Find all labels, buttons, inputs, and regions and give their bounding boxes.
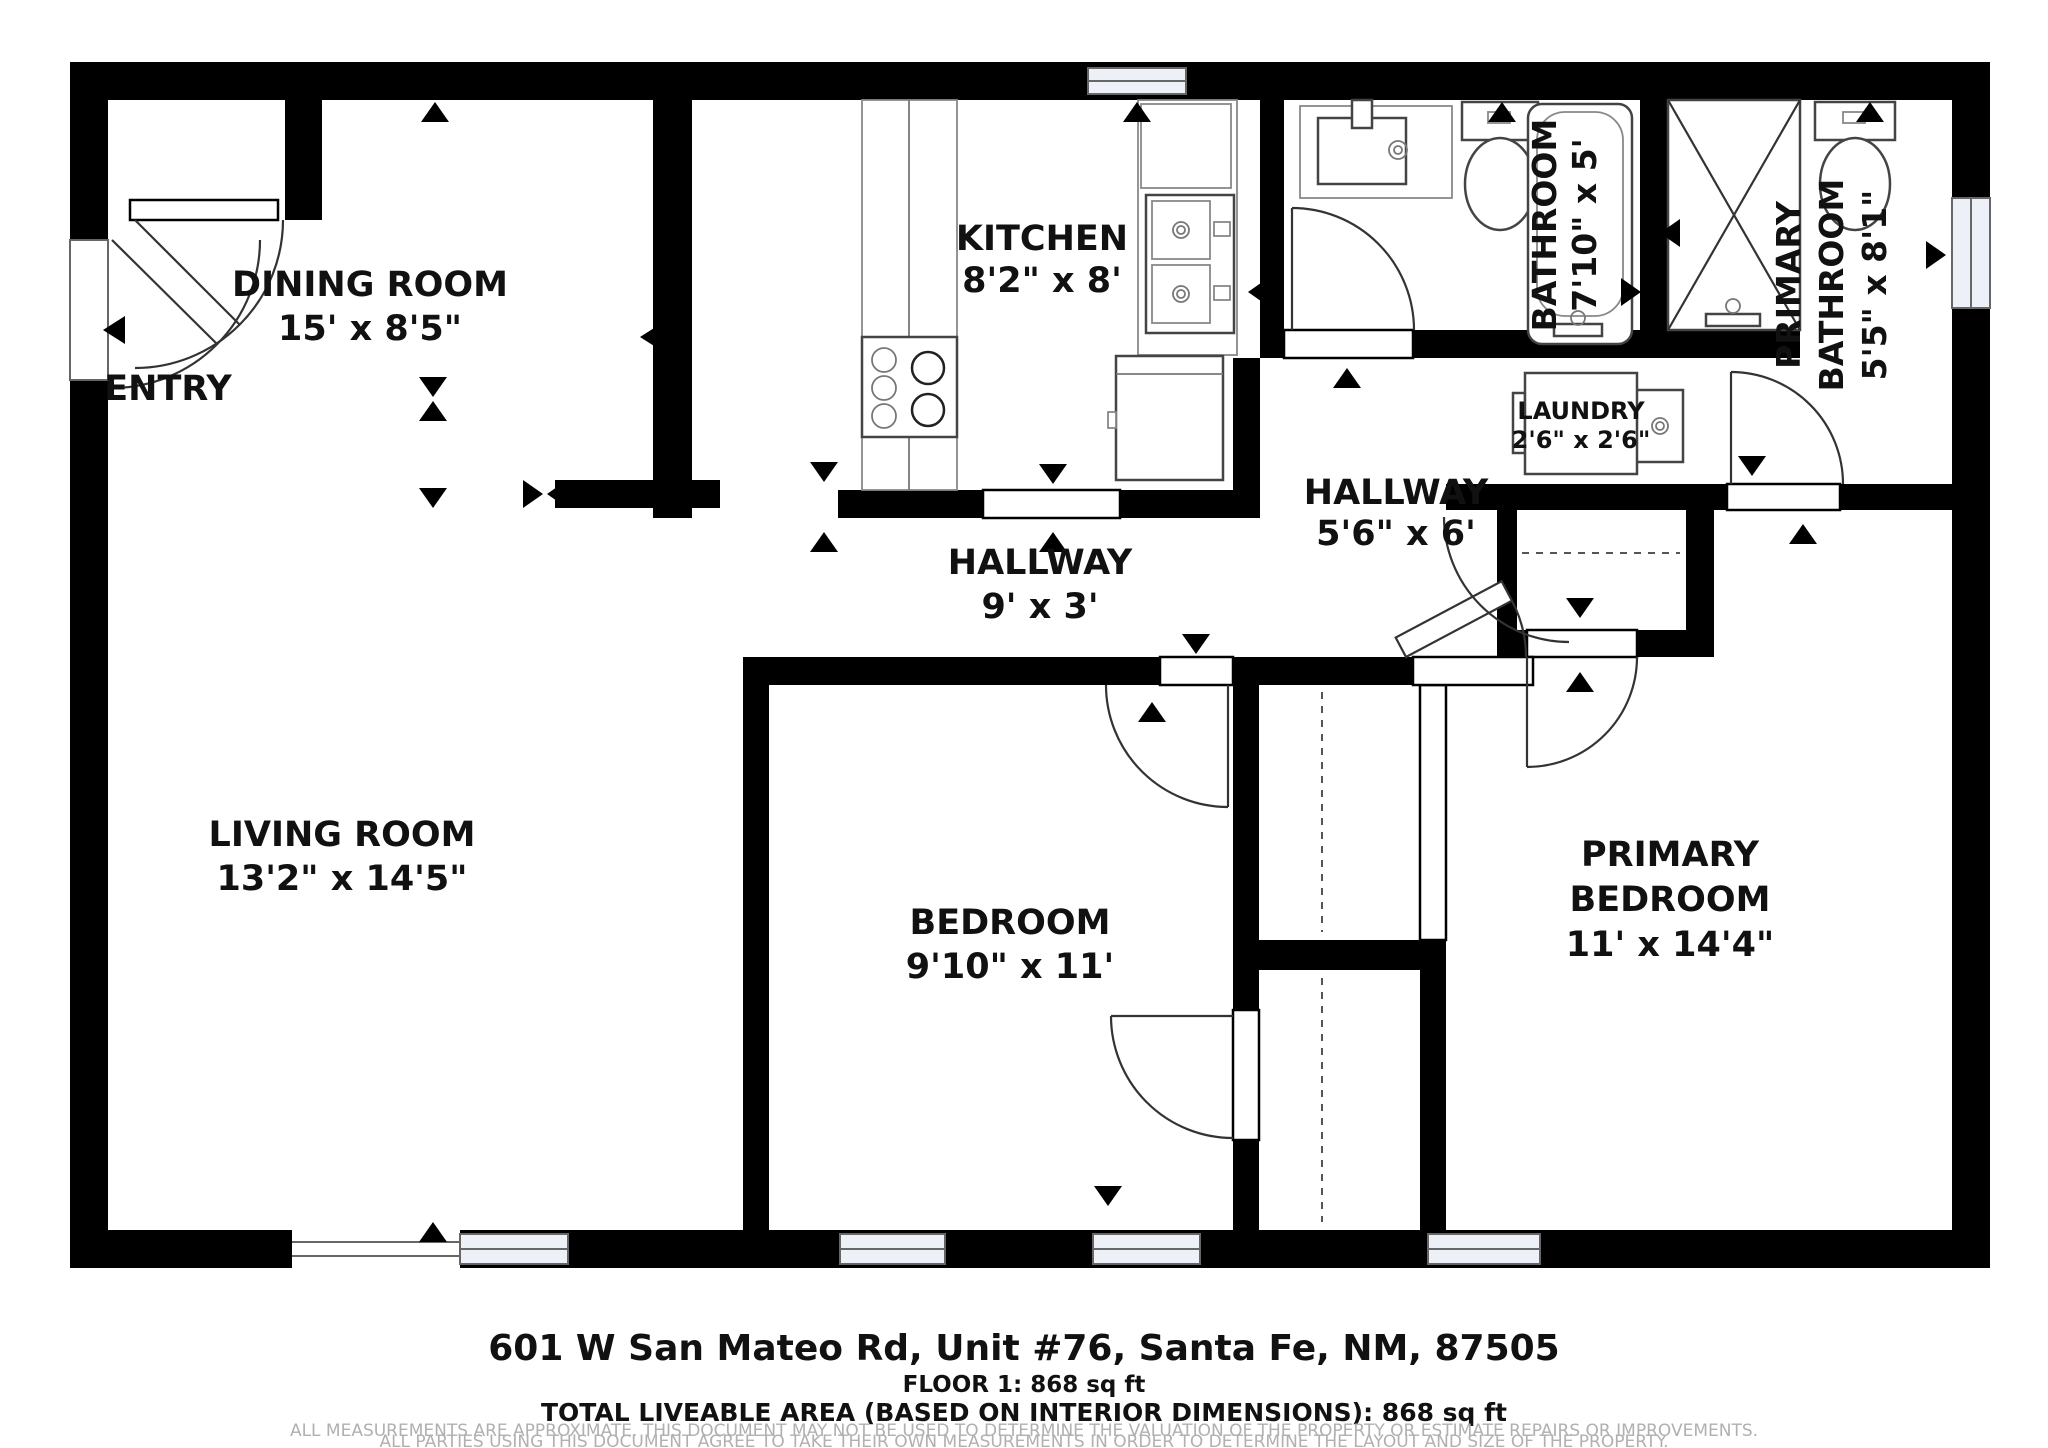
primary-bedroom-label-2: BEDROOM — [1570, 880, 1771, 920]
laundry-label: LAUNDRY — [1517, 397, 1645, 425]
bedroom-closet-door — [1111, 1016, 1233, 1138]
closet-a-door-sill — [1527, 630, 1637, 657]
window-top-wall — [1088, 68, 1186, 94]
kitchen-dims: 8'2" x 8' — [962, 261, 1122, 301]
marker-primary-bath-window — [1926, 241, 1946, 269]
primary-bedroom-entry-sill — [1413, 657, 1533, 685]
entry-label: ENTRY — [104, 369, 232, 409]
marker-dining-top — [421, 102, 449, 122]
front-door-opening — [70, 240, 108, 380]
closet-a-door — [1527, 657, 1637, 767]
bathroom-dims: 7'10" x 5' — [1565, 138, 1604, 312]
front-door — [112, 240, 260, 388]
kitchen-sink — [1146, 195, 1234, 333]
bathroom-label: BATHROOM — [1525, 119, 1564, 332]
stove — [862, 337, 957, 437]
living-room-dims: 13'2" x 14'5" — [217, 859, 468, 899]
hallway-passage-sill — [983, 490, 1120, 518]
primary-closet-door-sill — [1420, 685, 1446, 940]
window-bedroom-left — [840, 1234, 945, 1264]
address-line: 601 W San Mateo Rd, Unit #76, Santa Fe, … — [488, 1328, 1559, 1369]
bathroom-door — [1292, 208, 1414, 330]
primary-bedroom-dims: 11' x 14'4" — [1566, 925, 1774, 965]
hallway-lower-label: HALLWAY — [948, 543, 1133, 583]
primary-bathroom-label-2: BATHROOM — [1812, 179, 1851, 392]
disclaimer-line-2: ALL PARTIES USING THIS DOCUMENT AGREE TO… — [379, 1432, 1668, 1448]
kitchen-label: KITCHEN — [956, 219, 1128, 259]
bathroom-label-group: BATHROOM 7'10" x 5' — [1525, 119, 1604, 332]
hallway-upper-label: HALLWAY — [1304, 473, 1489, 513]
footer: 601 W San Mateo Rd, Unit #76, Santa Fe, … — [290, 1328, 1758, 1448]
bathroom-vanity-sink — [1300, 100, 1452, 198]
dishwasher — [1141, 104, 1231, 188]
primary-bathroom-door-sill — [1727, 484, 1840, 510]
primary-bathroom-dims: 5'5" x 8'1" — [1855, 190, 1894, 381]
window-living — [460, 1234, 568, 1264]
bedroom-closet-door-sill — [1233, 1010, 1259, 1140]
marker-bathroom-door — [1333, 368, 1361, 388]
window-primary-bedroom — [1428, 1234, 1540, 1264]
bedroom-dims: 9'10" x 11' — [906, 947, 1114, 987]
living-room-label: LIVING ROOM — [209, 815, 476, 855]
dining-room-dims: 15' x 8'5" — [278, 309, 462, 349]
primary-bathroom-label-1: PRIMARY — [1769, 200, 1808, 369]
floor-plan: DINING ROOM 15' x 8'5" ENTRY KITCHEN 8'2… — [0, 0, 2048, 1448]
floor-area-line: FLOOR 1: 868 sq ft — [903, 1372, 1146, 1398]
entry-closet-panel — [130, 200, 278, 220]
primary-bathroom-label-group: PRIMARY BATHROOM 5'5" x 8'1" — [1769, 179, 1894, 392]
window-right-wall — [1952, 198, 1990, 308]
hallway-lower-dims: 9' x 3' — [981, 587, 1098, 627]
laundry-dims: 2'6" x 2'6" — [1512, 426, 1651, 454]
dining-room-label: DINING ROOM — [232, 265, 508, 305]
bedroom-door-sill — [1160, 657, 1233, 685]
marker-kitchen-wall — [640, 323, 662, 351]
window-bedroom-right — [1093, 1234, 1200, 1264]
refrigerator — [1108, 356, 1223, 480]
bedroom-door — [1106, 685, 1228, 807]
bathroom-door-sill — [1284, 330, 1413, 358]
primary-bedroom-label-1: PRIMARY — [1581, 835, 1760, 875]
marker-bottom-window — [1094, 1186, 1122, 1206]
bedroom-label: BEDROOM — [910, 903, 1111, 943]
hallway-upper-dims: 5'6" x 6' — [1316, 514, 1476, 554]
